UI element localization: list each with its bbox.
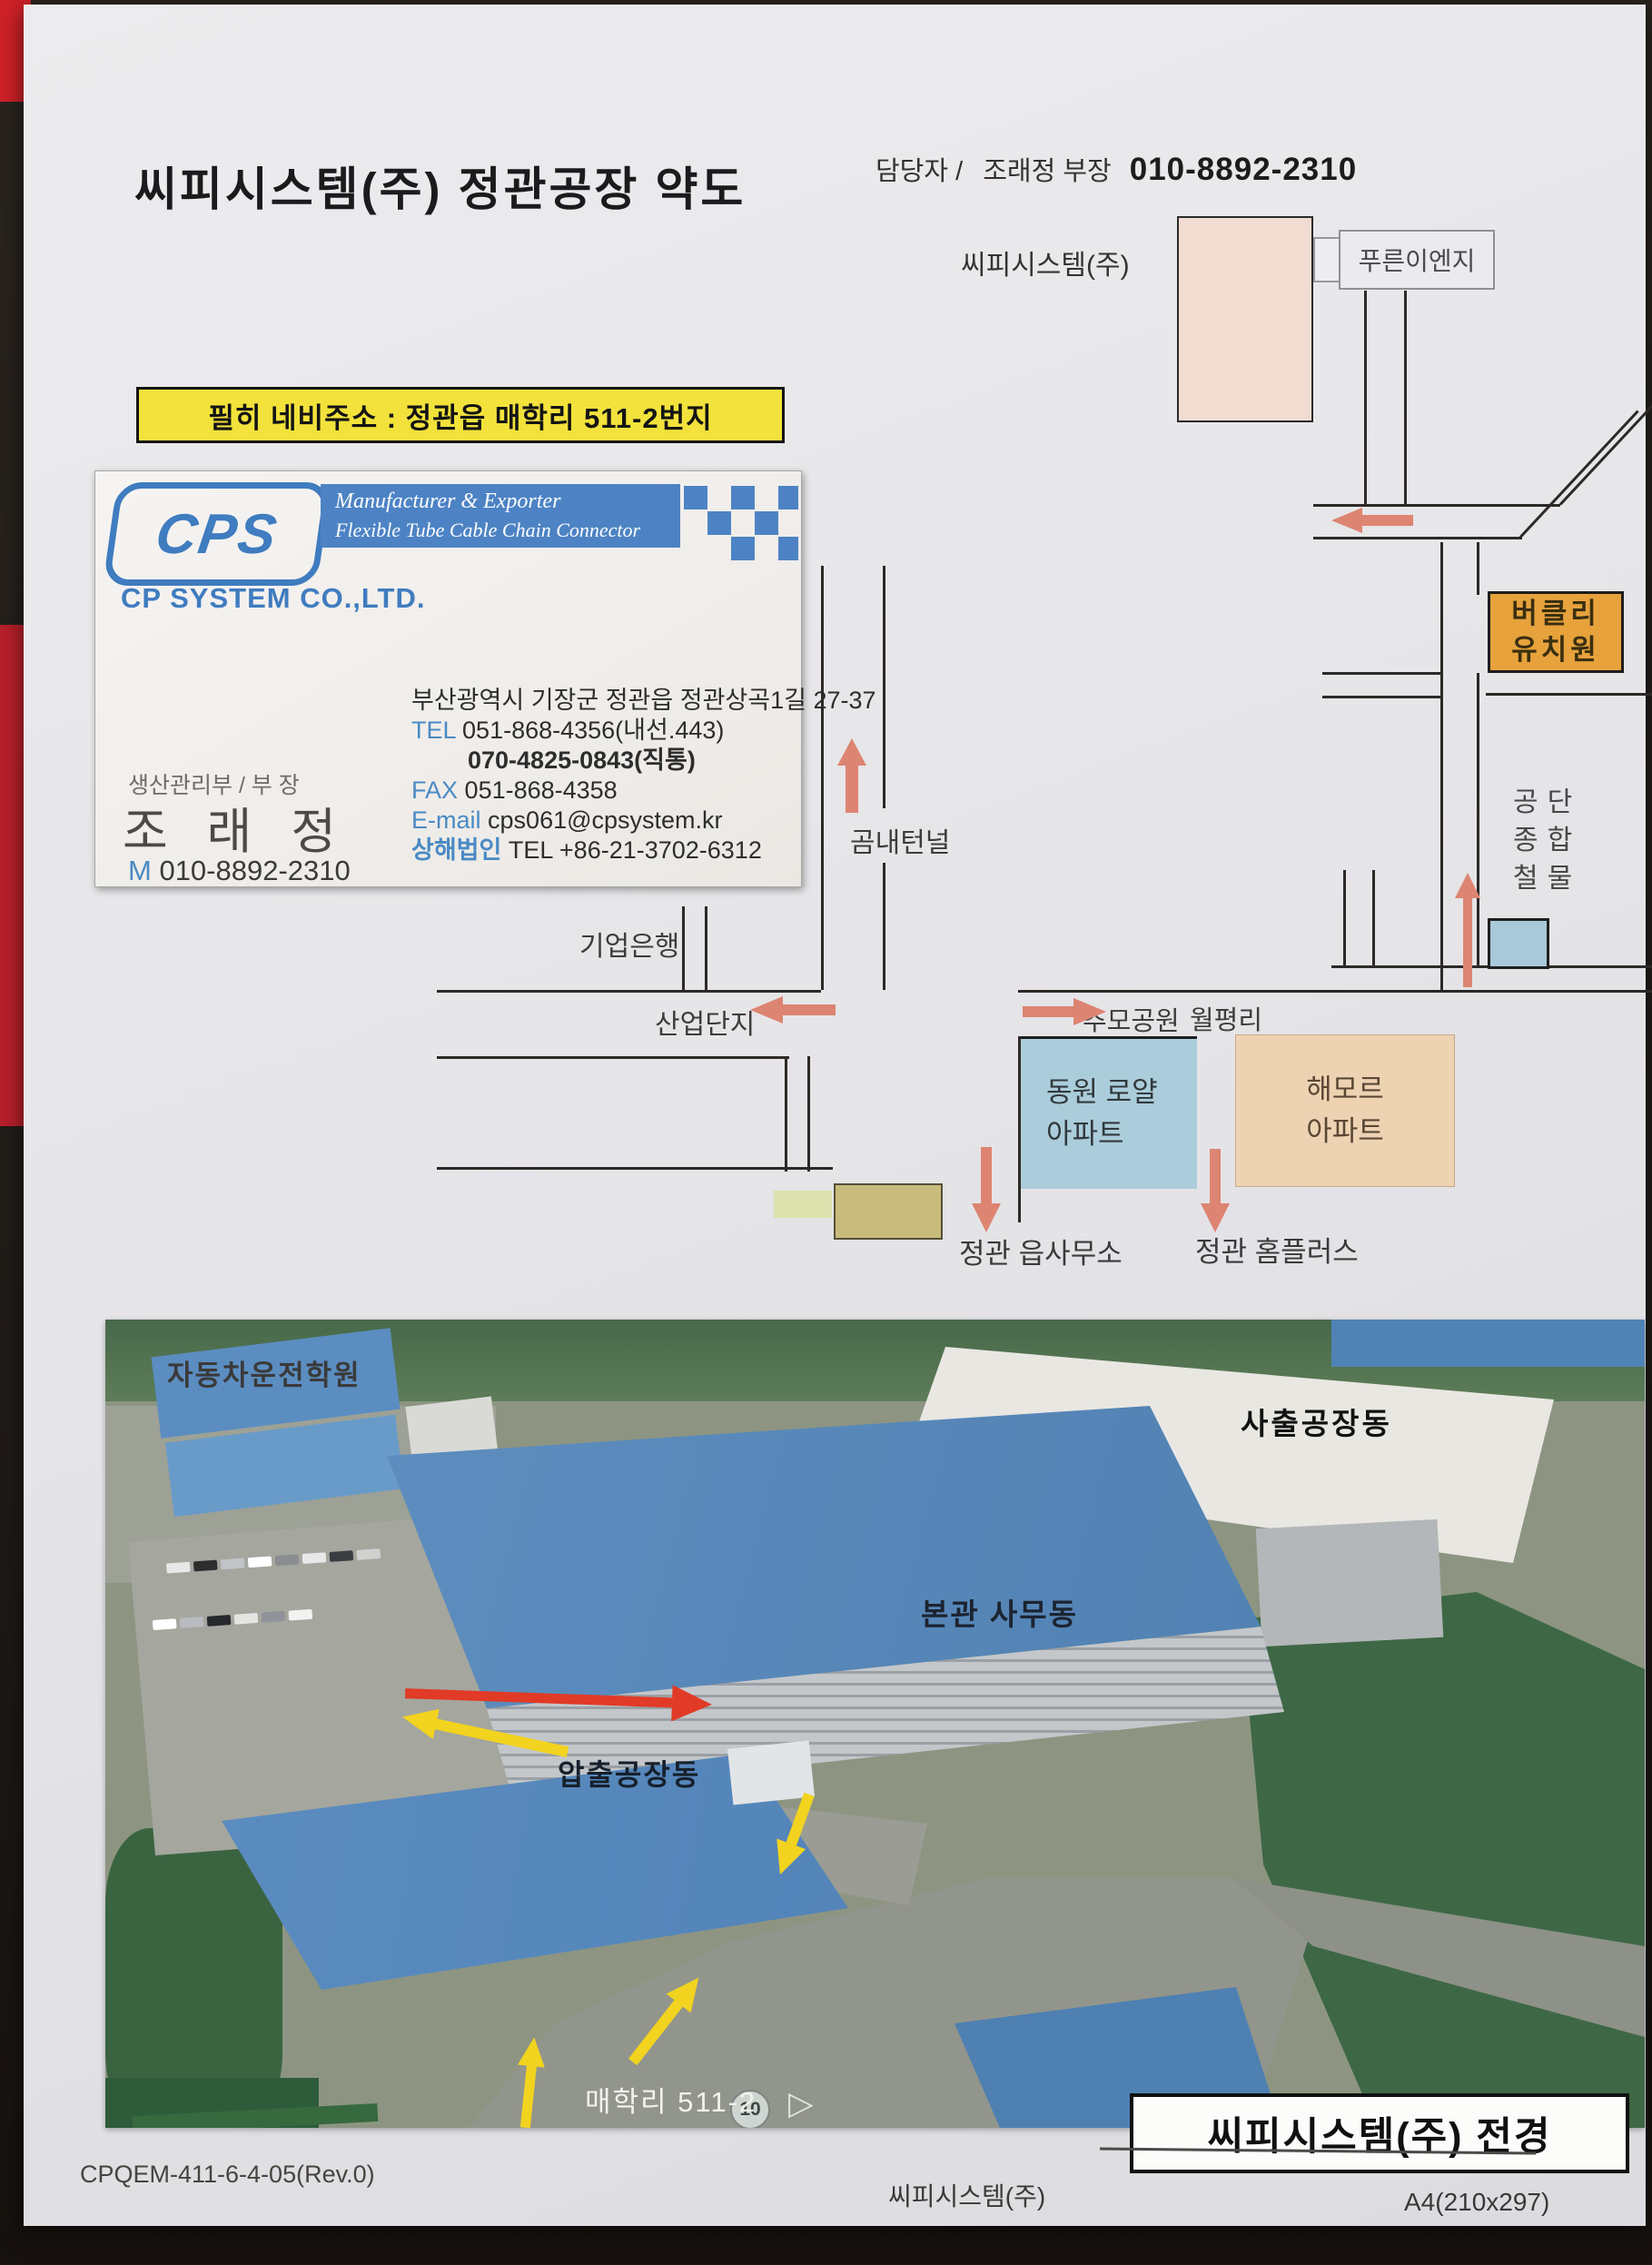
map-berkeley-line1: 버클리 (1511, 596, 1600, 632)
card-shanghai-tel: TEL +86-21-3702-6312 (509, 836, 762, 864)
map-township-office-label: 정관 읍사무소 (959, 1231, 1123, 1271)
road-main-east-right-upper (1477, 542, 1479, 595)
road-pureun-right (1404, 291, 1407, 506)
card-mobile-number: 010-8892-2310 (159, 855, 350, 886)
map-pureun-connector (1313, 237, 1340, 282)
label-main-office: 본관 사무동 (921, 1590, 1078, 1634)
card-person-name: 조 래 정 (123, 791, 349, 863)
aerial-photo: 10 ▷ 자동차운전학원 사출공장동 본관 사무동 압출공장동 매학리 511-… (105, 1320, 1645, 2128)
arrow-up-hardware-road (1455, 873, 1480, 987)
road-short-block-b (1372, 870, 1375, 967)
map-dongwon-box: 동원 로얄 아파트 (1021, 1036, 1197, 1189)
contact-name: 조래정 부장 (983, 157, 1111, 186)
business-card: CPS Manufacturer & Exporter Flexible Tub… (94, 470, 802, 887)
page-title: 씨피시스템(주) 정관공장 약도 (134, 152, 746, 219)
card-email: cps061@cpsystem.kr (488, 806, 723, 834)
map-gomnae-label: 곰내턴널 (850, 820, 950, 860)
map-gongdan-line3: 철물 (1513, 860, 1581, 898)
road-block-right (807, 1056, 810, 1172)
background-red-strip-mid (0, 625, 25, 1126)
card-email-label: E-mail (411, 806, 481, 834)
map-dongwon-line2: 아파트 (1046, 1113, 1158, 1155)
map-pureun-label: 푸른이엔지 (1359, 242, 1476, 278)
road-diagonal-a (1519, 410, 1639, 539)
road-triangle-marking: ▷ (788, 2084, 814, 2122)
card-tel2: 070-4825-0843(직통) (411, 746, 876, 776)
top-right-blue-roof (1331, 1320, 1645, 1367)
map-dongwon-line1: 동원 로얄 (1046, 1072, 1158, 1113)
label-injection-plant: 사출공장동 (1241, 1400, 1392, 1443)
map-factory-box (1177, 216, 1313, 422)
map-gongdan-line2: 종합 (1513, 822, 1581, 860)
label-extrusion-plant: 압출공장동 (558, 1752, 700, 1794)
map-bank-label: 기업은행 (579, 924, 679, 964)
photographed-document: 씨피시스템(주) 정관공장 약도 담당자 / 조래정 부장 010-8892-2… (0, 0, 1652, 2265)
card-address-block: 부산광역시 기장군 정관읍 정관상곡1길 27-37 TEL 051-868-4… (411, 686, 876, 865)
card-mobile-label: M (128, 855, 152, 886)
label-driving-school: 자동차운전학원 (167, 1352, 361, 1393)
road-block-left (785, 1056, 787, 1172)
card-blue-band: Manufacturer & Exporter Flexible Tube Ca… (321, 484, 680, 548)
road-bank-left (682, 906, 685, 992)
arrow-down-township (972, 1147, 1001, 1232)
card-tel-label: TEL (411, 717, 456, 744)
map-dongwon-label: 동원 로얄 아파트 (1046, 1072, 1158, 1155)
road-gomnae-right-upper (883, 566, 885, 808)
cps-logo-text: CPS (152, 502, 282, 567)
cps-logo-icon: CPS (103, 482, 331, 586)
card-company-name: CP SYSTEM CO.,LTD. (121, 582, 426, 615)
map-industrial-label: 산업단지 (655, 1002, 755, 1042)
contact-phone: 010-8892-2310 (1130, 152, 1357, 187)
photo-caption-box: 씨피시스템(주) 전경 (1130, 2093, 1629, 2173)
card-tagline-2: Flexible Tube Cable Chain Connector (335, 516, 680, 544)
footer-doc-no: CPQEM-411-6-4-05(Rev.0) (80, 2161, 375, 2189)
nav-address-note-text: 필히 네비주소 : 정관읍 매학리 511-2번지 (208, 395, 712, 436)
map-haemoreu-line1: 해모르 (1306, 1069, 1384, 1111)
road-lower-west (437, 1056, 789, 1059)
contact-line: 담당자 / 조래정 부장 010-8892-2310 (875, 150, 1357, 188)
map-hardware-blue-box (1488, 918, 1549, 969)
card-fax-label: FAX (411, 776, 458, 804)
logo-checker-pattern (684, 484, 802, 560)
map-haemoreu-line2: 아파트 (1306, 1111, 1384, 1152)
map-pureun-box: 푸른이엔지 (1339, 230, 1495, 290)
label-road-address: 매학리 511-2 (585, 2079, 757, 2120)
road-pureun-left (1364, 291, 1367, 506)
road-bank-right (705, 906, 707, 992)
road-factory-bottom (1313, 537, 1522, 539)
road-sanup-west (437, 990, 821, 993)
road-cross-west-b (1322, 696, 1442, 698)
road-factory-top (1313, 504, 1560, 507)
card-tel: 051-868-4356(내선.443) (462, 717, 724, 744)
road-cross-east (1486, 693, 1652, 696)
card-tagline-1: Manufacturer & Exporter (335, 488, 680, 516)
map-gongdan-line1: 공단 (1513, 784, 1581, 822)
right-gray-annex (1256, 1519, 1444, 1647)
arrow-up-gomnae (837, 738, 866, 813)
road-gomnae-right-lower (883, 863, 885, 990)
road-cross-west-a (1322, 672, 1442, 675)
footer-paper-size: A4(210x297) (1404, 2188, 1549, 2217)
road-gomnae-left (821, 566, 824, 990)
arrow-right-memorial (1023, 998, 1106, 1025)
arrow-left-near-factory (1331, 508, 1415, 533)
map-homeplus-label: 정관 홈플러스 (1195, 1229, 1359, 1270)
map-haemoreu-box: 해모르 아파트 (1235, 1034, 1455, 1187)
map-berkeley-box: 버클리 유치원 (1488, 591, 1624, 673)
road-bottom-west (437, 1167, 833, 1170)
map-gongdan-label: 공단 종합 철물 (1513, 784, 1581, 898)
document-paper: 씨피시스템(주) 정관공장 약도 담당자 / 조래정 부장 010-8892-2… (24, 5, 1646, 2226)
map-wolpyeongri-label: 월평리 (1190, 999, 1262, 1037)
card-shanghai-label: 상해법인 (411, 836, 501, 864)
road-short-block-a (1343, 870, 1346, 967)
arrow-down-homeplus (1201, 1149, 1230, 1232)
road-main-east-left (1440, 542, 1443, 990)
arrow-left-industrial (750, 996, 837, 1024)
contact-label: 담당자 / (875, 157, 963, 186)
card-mobile: M 010-8892-2310 (128, 855, 351, 887)
map-olive-box-big (834, 1183, 943, 1240)
map-berkeley-line2: 유치원 (1511, 632, 1600, 668)
road-sanup-east (1018, 990, 1652, 993)
map-olive-box-small (774, 1191, 832, 1218)
footer-center: 씨피시스템(주) (888, 2177, 1045, 2213)
nav-address-note: 필히 네비주소 : 정관읍 매학리 511-2번지 (136, 387, 785, 443)
map-factory-label: 씨피시스템(주) (961, 242, 1130, 282)
card-address: 부산광역시 기장군 정관읍 정관상곡1길 27-37 (411, 686, 876, 716)
card-fax: 051-868-4358 (465, 776, 618, 804)
